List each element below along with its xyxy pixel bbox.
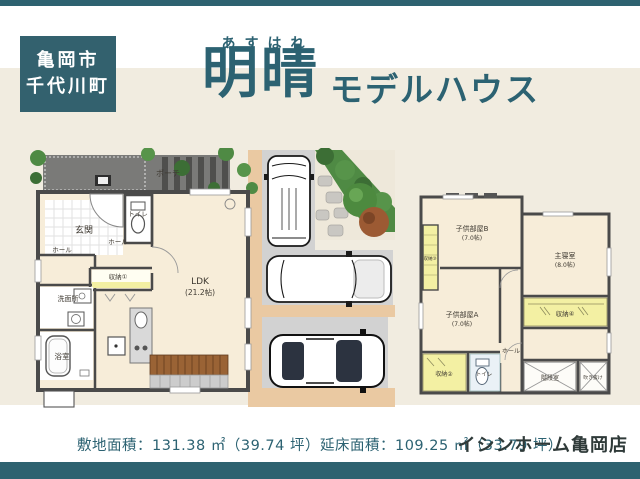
top-accent-strip [0, 0, 640, 6]
room-label-storage4: 収納④ [556, 309, 575, 318]
page-title: 明晴 [202, 46, 320, 102]
suv-icon [267, 251, 391, 307]
room-size-kids-a: (7.0帖) [452, 320, 472, 328]
location-badge: 亀岡市 千代川町 [20, 36, 116, 112]
flyer-page: 亀岡市 千代川町 あすはれ 明晴 モデルハウス [0, 0, 640, 479]
van-icon [264, 156, 314, 246]
title-suffix: モデルハウス [330, 73, 540, 106]
room-label-ldk: LDK [191, 277, 210, 287]
room-size-master: (8.0帖) [555, 261, 575, 269]
room-size-kids-b: (7.0帖) [462, 234, 482, 242]
floorplan-1f: ポーチ 玄関 トイレ ホール ホール 収納① LDK (21.2帖) 洗面所 浴… [30, 148, 410, 408]
location-town: 千代川町 [26, 74, 110, 100]
car-icon [270, 329, 384, 393]
entry-step [44, 391, 74, 407]
room-label-hall-1: ホール [108, 238, 128, 246]
room-label-hall-2: ホール [52, 246, 72, 254]
room-label-toilet-1f: トイレ [128, 210, 148, 218]
room-label-void: 吹き抜け [583, 374, 602, 381]
room-label-storage3: 収納③ [423, 255, 436, 262]
room-label-washroom: 洗面所 [58, 294, 79, 303]
room-label-master: 主寝室 [555, 251, 576, 260]
room-label-kids-a: 子供部屋A [446, 310, 479, 319]
room-label-toilet-2f: トイレ [476, 372, 493, 378]
floorplan-2f: 子供部屋B (7.0帖) 主寝室 (8.0帖) 収納③ 子供部屋A (7.0帖)… [418, 193, 612, 396]
room-label-bath: 浴室 [55, 351, 70, 361]
porch-and-fence [43, 155, 230, 192]
room-label-porch: ポーチ [156, 169, 180, 178]
toilet-room-1f [125, 195, 152, 243]
room-label-stairwell: 階段室 [541, 374, 559, 382]
bottom-accent-strip [0, 462, 640, 479]
room-label-storage1: 収納① [109, 272, 128, 281]
location-city: 亀岡市 [37, 48, 100, 74]
room-label-entrance: 玄関 [75, 224, 93, 236]
room-label-storage2: 収納② [435, 370, 453, 378]
store-name: イシンホーム亀岡店 [458, 431, 628, 457]
room-size-ldk: (21.2帖) [185, 287, 215, 297]
staircase-icon [150, 355, 228, 388]
room-label-hall-2f: ホール [502, 348, 520, 355]
washroom [40, 287, 93, 328]
kitchen-sink-icon [135, 312, 147, 328]
room-label-kids-b: 子供部屋B [456, 224, 489, 233]
